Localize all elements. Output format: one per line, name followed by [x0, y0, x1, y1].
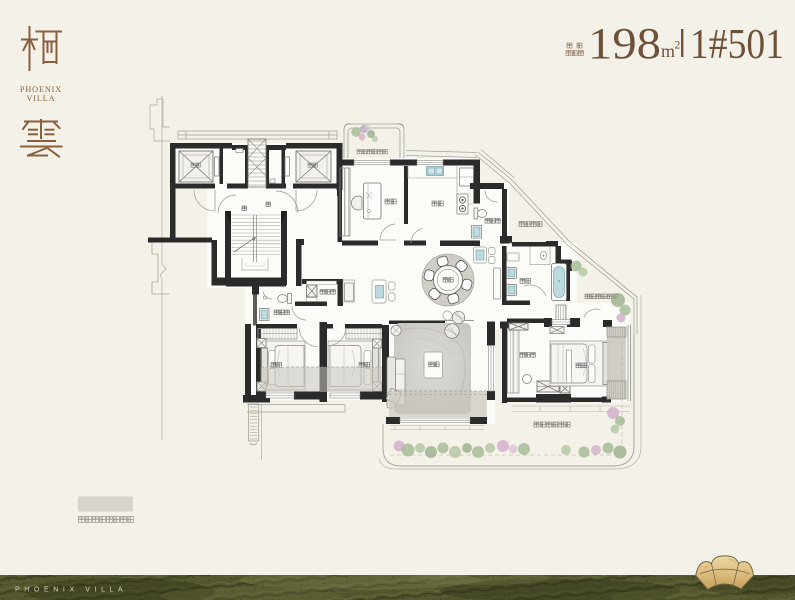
svg-text:198: 198: [588, 19, 661, 68]
svg-text:2: 2: [675, 40, 681, 52]
svg-text:1#501: 1#501: [690, 22, 784, 68]
svg-text:PHOENIX: PHOENIX: [20, 85, 62, 94]
svg-text:VILLA: VILLA: [26, 94, 55, 103]
svg-text:m: m: [661, 41, 675, 61]
svg-text:PHOENIX VILLA: PHOENIX VILLA: [15, 587, 127, 594]
